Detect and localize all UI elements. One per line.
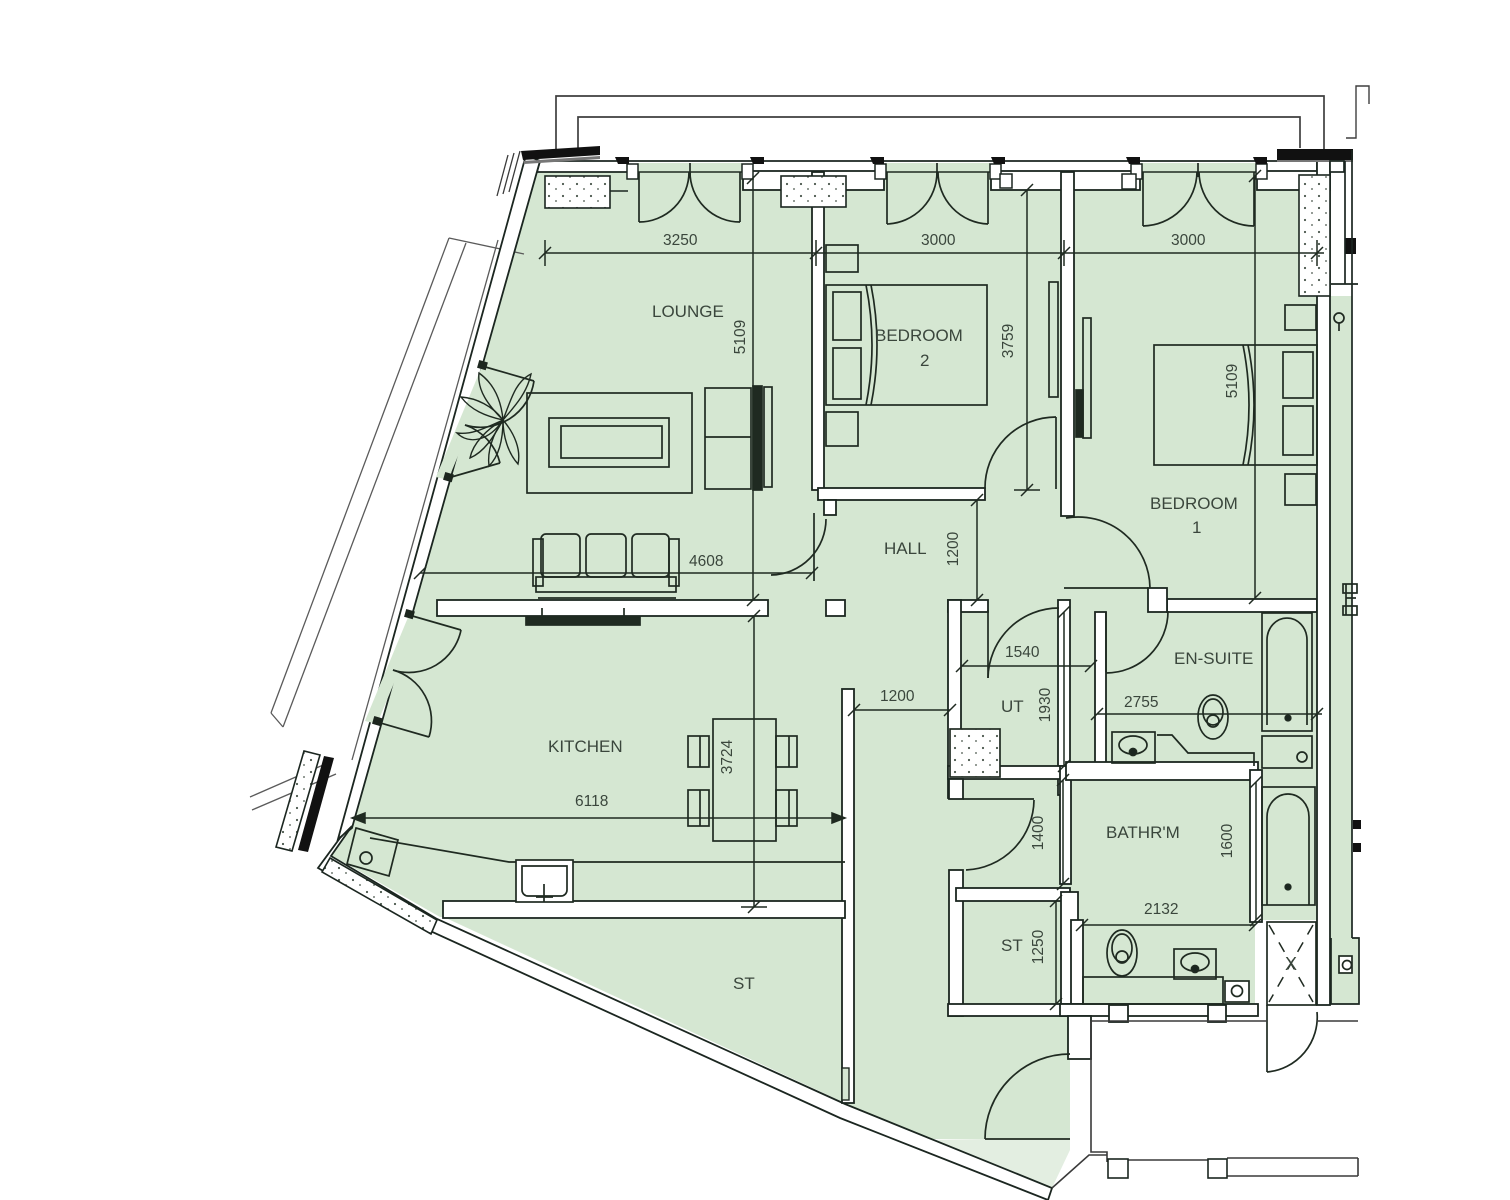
svg-text:1540: 1540 — [1005, 644, 1040, 661]
svg-text:3000: 3000 — [1171, 232, 1206, 249]
svg-text:1: 1 — [1192, 518, 1201, 537]
svg-text:2: 2 — [920, 351, 929, 370]
svg-text:4608: 4608 — [689, 553, 723, 570]
svg-text:EN-SUITE: EN-SUITE — [1174, 649, 1253, 668]
svg-text:5109: 5109 — [732, 320, 749, 354]
svg-text:X: X — [1285, 954, 1297, 974]
svg-text:BEDROOM: BEDROOM — [875, 326, 963, 345]
svg-text:3724: 3724 — [719, 739, 736, 774]
svg-text:UT: UT — [1001, 697, 1024, 716]
svg-text:1200: 1200 — [945, 531, 962, 566]
svg-text:5109: 5109 — [1224, 364, 1241, 398]
svg-text:1600: 1600 — [1219, 823, 1236, 858]
svg-text:BEDROOM: BEDROOM — [1150, 494, 1238, 513]
svg-text:KITCHEN: KITCHEN — [548, 737, 623, 756]
svg-text:1400: 1400 — [1030, 815, 1047, 850]
svg-text:3000: 3000 — [921, 232, 956, 249]
svg-text:3250: 3250 — [663, 232, 698, 249]
svg-text:ST: ST — [733, 974, 755, 993]
svg-text:1930: 1930 — [1037, 687, 1054, 722]
svg-text:1200: 1200 — [880, 688, 915, 705]
svg-text:BATHR'M: BATHR'M — [1106, 823, 1180, 842]
svg-text:HALL: HALL — [884, 539, 927, 558]
svg-text:2132: 2132 — [1144, 901, 1178, 918]
svg-text:ST: ST — [1001, 936, 1023, 955]
svg-text:LOUNGE: LOUNGE — [652, 302, 724, 321]
svg-text:2755: 2755 — [1124, 694, 1158, 711]
svg-text:3759: 3759 — [1000, 324, 1017, 358]
svg-text:6118: 6118 — [575, 793, 608, 810]
svg-text:1250: 1250 — [1030, 929, 1047, 964]
